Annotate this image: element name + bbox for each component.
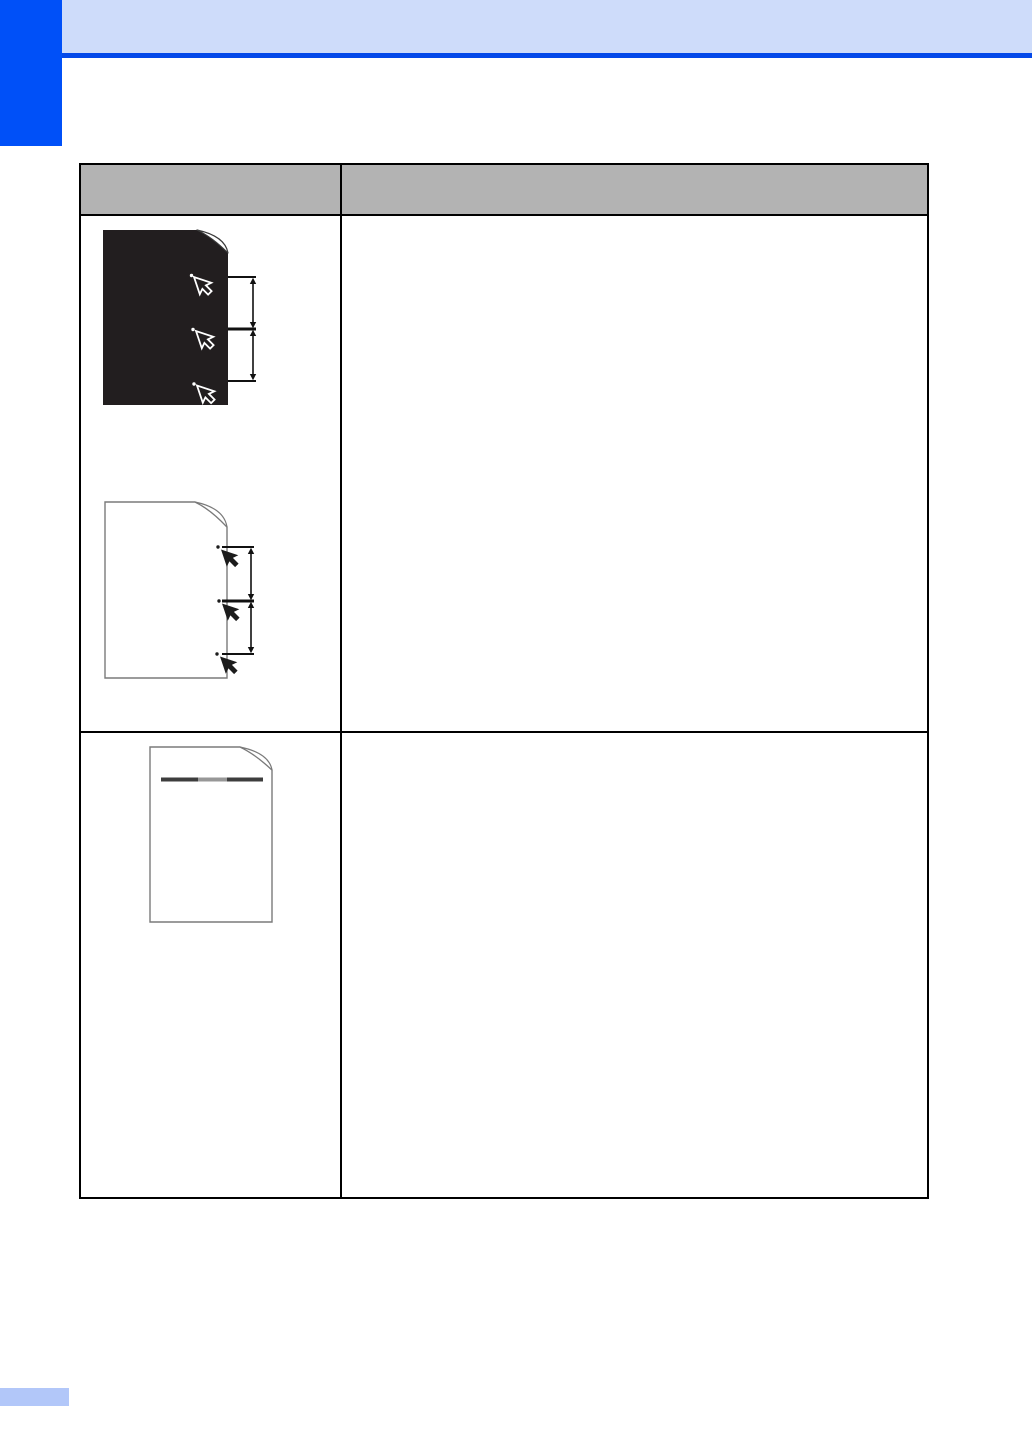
manual-page: { "page": { "width": 1032, "height": 145…: [0, 0, 1032, 1456]
table-header-cell-left: [81, 165, 342, 214]
spot-dot: [217, 599, 220, 602]
printed-page-shape: [105, 502, 227, 678]
table-header-cell-right: [342, 165, 927, 214]
table-row: [81, 733, 927, 1197]
header-rule: [62, 53, 1032, 58]
printed-page-shape: [150, 747, 272, 922]
spot-dot: [190, 274, 193, 277]
table-cell-example-figures: [81, 216, 342, 731]
figure-horizontal-band-across-page: [144, 740, 289, 930]
header-band: [0, 0, 1032, 53]
printed-page-shape: [103, 230, 228, 405]
table-row: [81, 216, 927, 733]
spot-dot: [192, 382, 195, 385]
spot-dot: [215, 652, 218, 655]
table-cell-remedy: [342, 216, 927, 731]
troubleshooting-table: [79, 163, 929, 1199]
figure-dark-spots-on-white-page: [98, 494, 268, 690]
page-footer-marker: [0, 1388, 69, 1406]
chapter-tab-bar: [0, 0, 62, 146]
table-cell-remedy: [342, 733, 927, 1197]
dimension-arrows: [228, 277, 256, 381]
figure-white-spots-on-black-page: [98, 224, 268, 416]
table-header-row: [81, 165, 927, 216]
spot-dot: [191, 328, 194, 331]
spot-dot: [216, 545, 219, 548]
table-cell-example-figures: [81, 733, 342, 1197]
